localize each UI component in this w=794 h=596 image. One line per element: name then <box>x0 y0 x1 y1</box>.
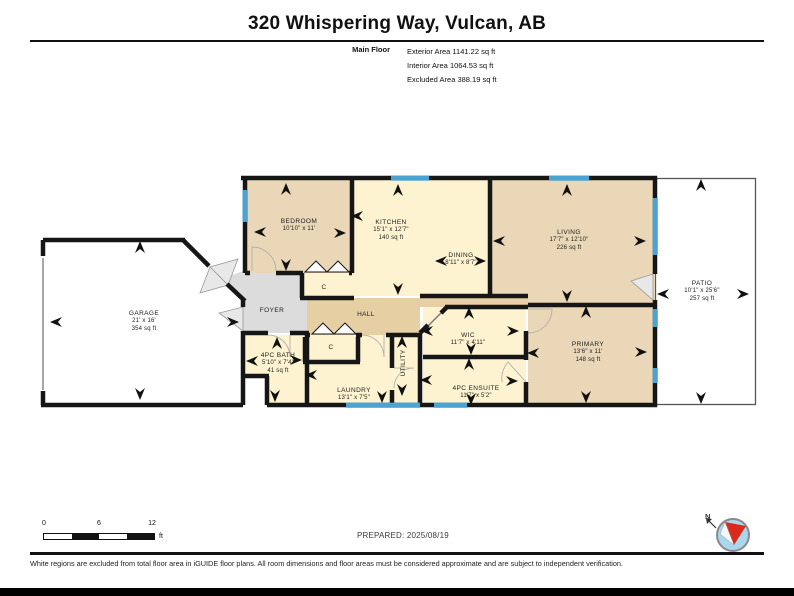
compass-north-label: N <box>705 512 710 521</box>
prepared-date: PREPARED: 2025/08/19 <box>357 531 449 540</box>
room-label-hall: HALL <box>357 311 375 319</box>
footer-divider <box>30 552 764 555</box>
room-label-bedroom: BEDROOM 10'10" x 11' <box>281 218 317 234</box>
room-label-dining: DINING 8'11" x 8'7" <box>445 252 477 268</box>
disclaimer-text: White regions are excluded from total fl… <box>30 559 770 568</box>
scale-unit: ft <box>159 533 163 540</box>
room-label-utility: UTILITY <box>400 350 408 377</box>
room-label-patio: PATIO 10'1" x 25'6" 257 sq ft <box>684 280 720 304</box>
bottom-border <box>0 588 794 596</box>
room-label-ensuite: 4PC ENSUITE 11'7" x 5'2" <box>452 385 499 401</box>
room-label-living: LIVING 17'7" x 12'10" 226 sq ft <box>549 229 588 253</box>
room-label-laundry: LAUNDRY 13'1" x 7'5" <box>337 387 371 403</box>
compass-icon <box>706 518 749 551</box>
room-label-bath: 4PC BATH 5'10" x 7'4" 41 sq ft <box>261 352 296 376</box>
floor-plan-page: 320 Whispering Way, Vulcan, AB Main Floo… <box>0 0 794 596</box>
room-label-closet-1: C <box>321 284 326 292</box>
scale-tick-6: 6 <box>97 520 101 527</box>
scale-bar <box>43 533 155 540</box>
room-label-primary: PRIMARY 13'6" x 11' 148 sq ft <box>572 341 604 365</box>
room-label-wic: WIC 11'7" x 4'11" <box>451 332 486 348</box>
scale-tick-12: 12 <box>148 520 156 527</box>
floor-plan-drawing <box>0 0 794 596</box>
scale-tick-0: 0 <box>42 520 46 527</box>
room-label-closet-2: C <box>328 344 333 352</box>
room-label-foyer: FOYER <box>260 307 284 315</box>
room-label-garage: GARAGE 21' x 16' 354 sq ft <box>129 310 159 334</box>
room-label-kitchen: KITCHEN 15'1" x 12'7" 140 sq ft <box>373 219 409 243</box>
